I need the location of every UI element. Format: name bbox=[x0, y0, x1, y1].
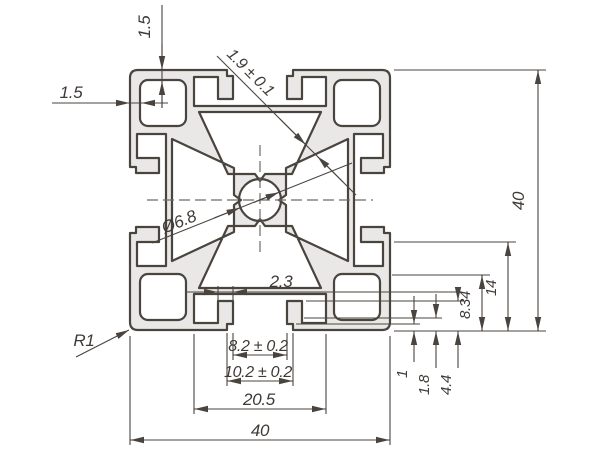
dim-wall-left-label: 1.5 bbox=[60, 83, 84, 102]
dim-slot-step-label: 10.2 ± 0.2 bbox=[224, 364, 292, 381]
arrow bbox=[280, 119, 306, 145]
drawing-canvas: 1.5 1.5 1.9 ± 0.1 Ø6.8 2.3 R1 8.2 ± 0.2 … bbox=[0, 0, 600, 450]
arrow bbox=[318, 157, 344, 183]
arrow bbox=[253, 192, 279, 202]
dim-hook-wall-label: 2.3 bbox=[269, 272, 294, 291]
dim-step-depth-label: 1 bbox=[394, 370, 411, 378]
dim-hole-diameter-label: Ø6.8 bbox=[158, 206, 200, 238]
dim-corner-radius-label: R1 bbox=[73, 331, 94, 350]
dim-overall-width-label: 40 bbox=[251, 421, 270, 440]
technical-drawing: 1.5 1.5 1.9 ± 0.1 Ø6.8 2.3 R1 8.2 ± 0.2 … bbox=[0, 0, 600, 450]
dim-overall-height-label: 40 bbox=[509, 191, 528, 210]
dim-slot-cavity-width-label: 20.5 bbox=[242, 390, 276, 409]
dim-wall-top-label: 1.5 bbox=[135, 15, 154, 39]
dim-hook-depth-label: 8.34 bbox=[457, 291, 474, 319]
dim-lip-depth-label: 1.8 bbox=[416, 374, 433, 395]
dim-cavity-height-label: 14 bbox=[483, 280, 500, 296]
dim-cavity-depth-label: 4.4 bbox=[438, 375, 455, 395]
dim-slot-opening-label: 8.2 ± 0.2 bbox=[228, 338, 288, 355]
